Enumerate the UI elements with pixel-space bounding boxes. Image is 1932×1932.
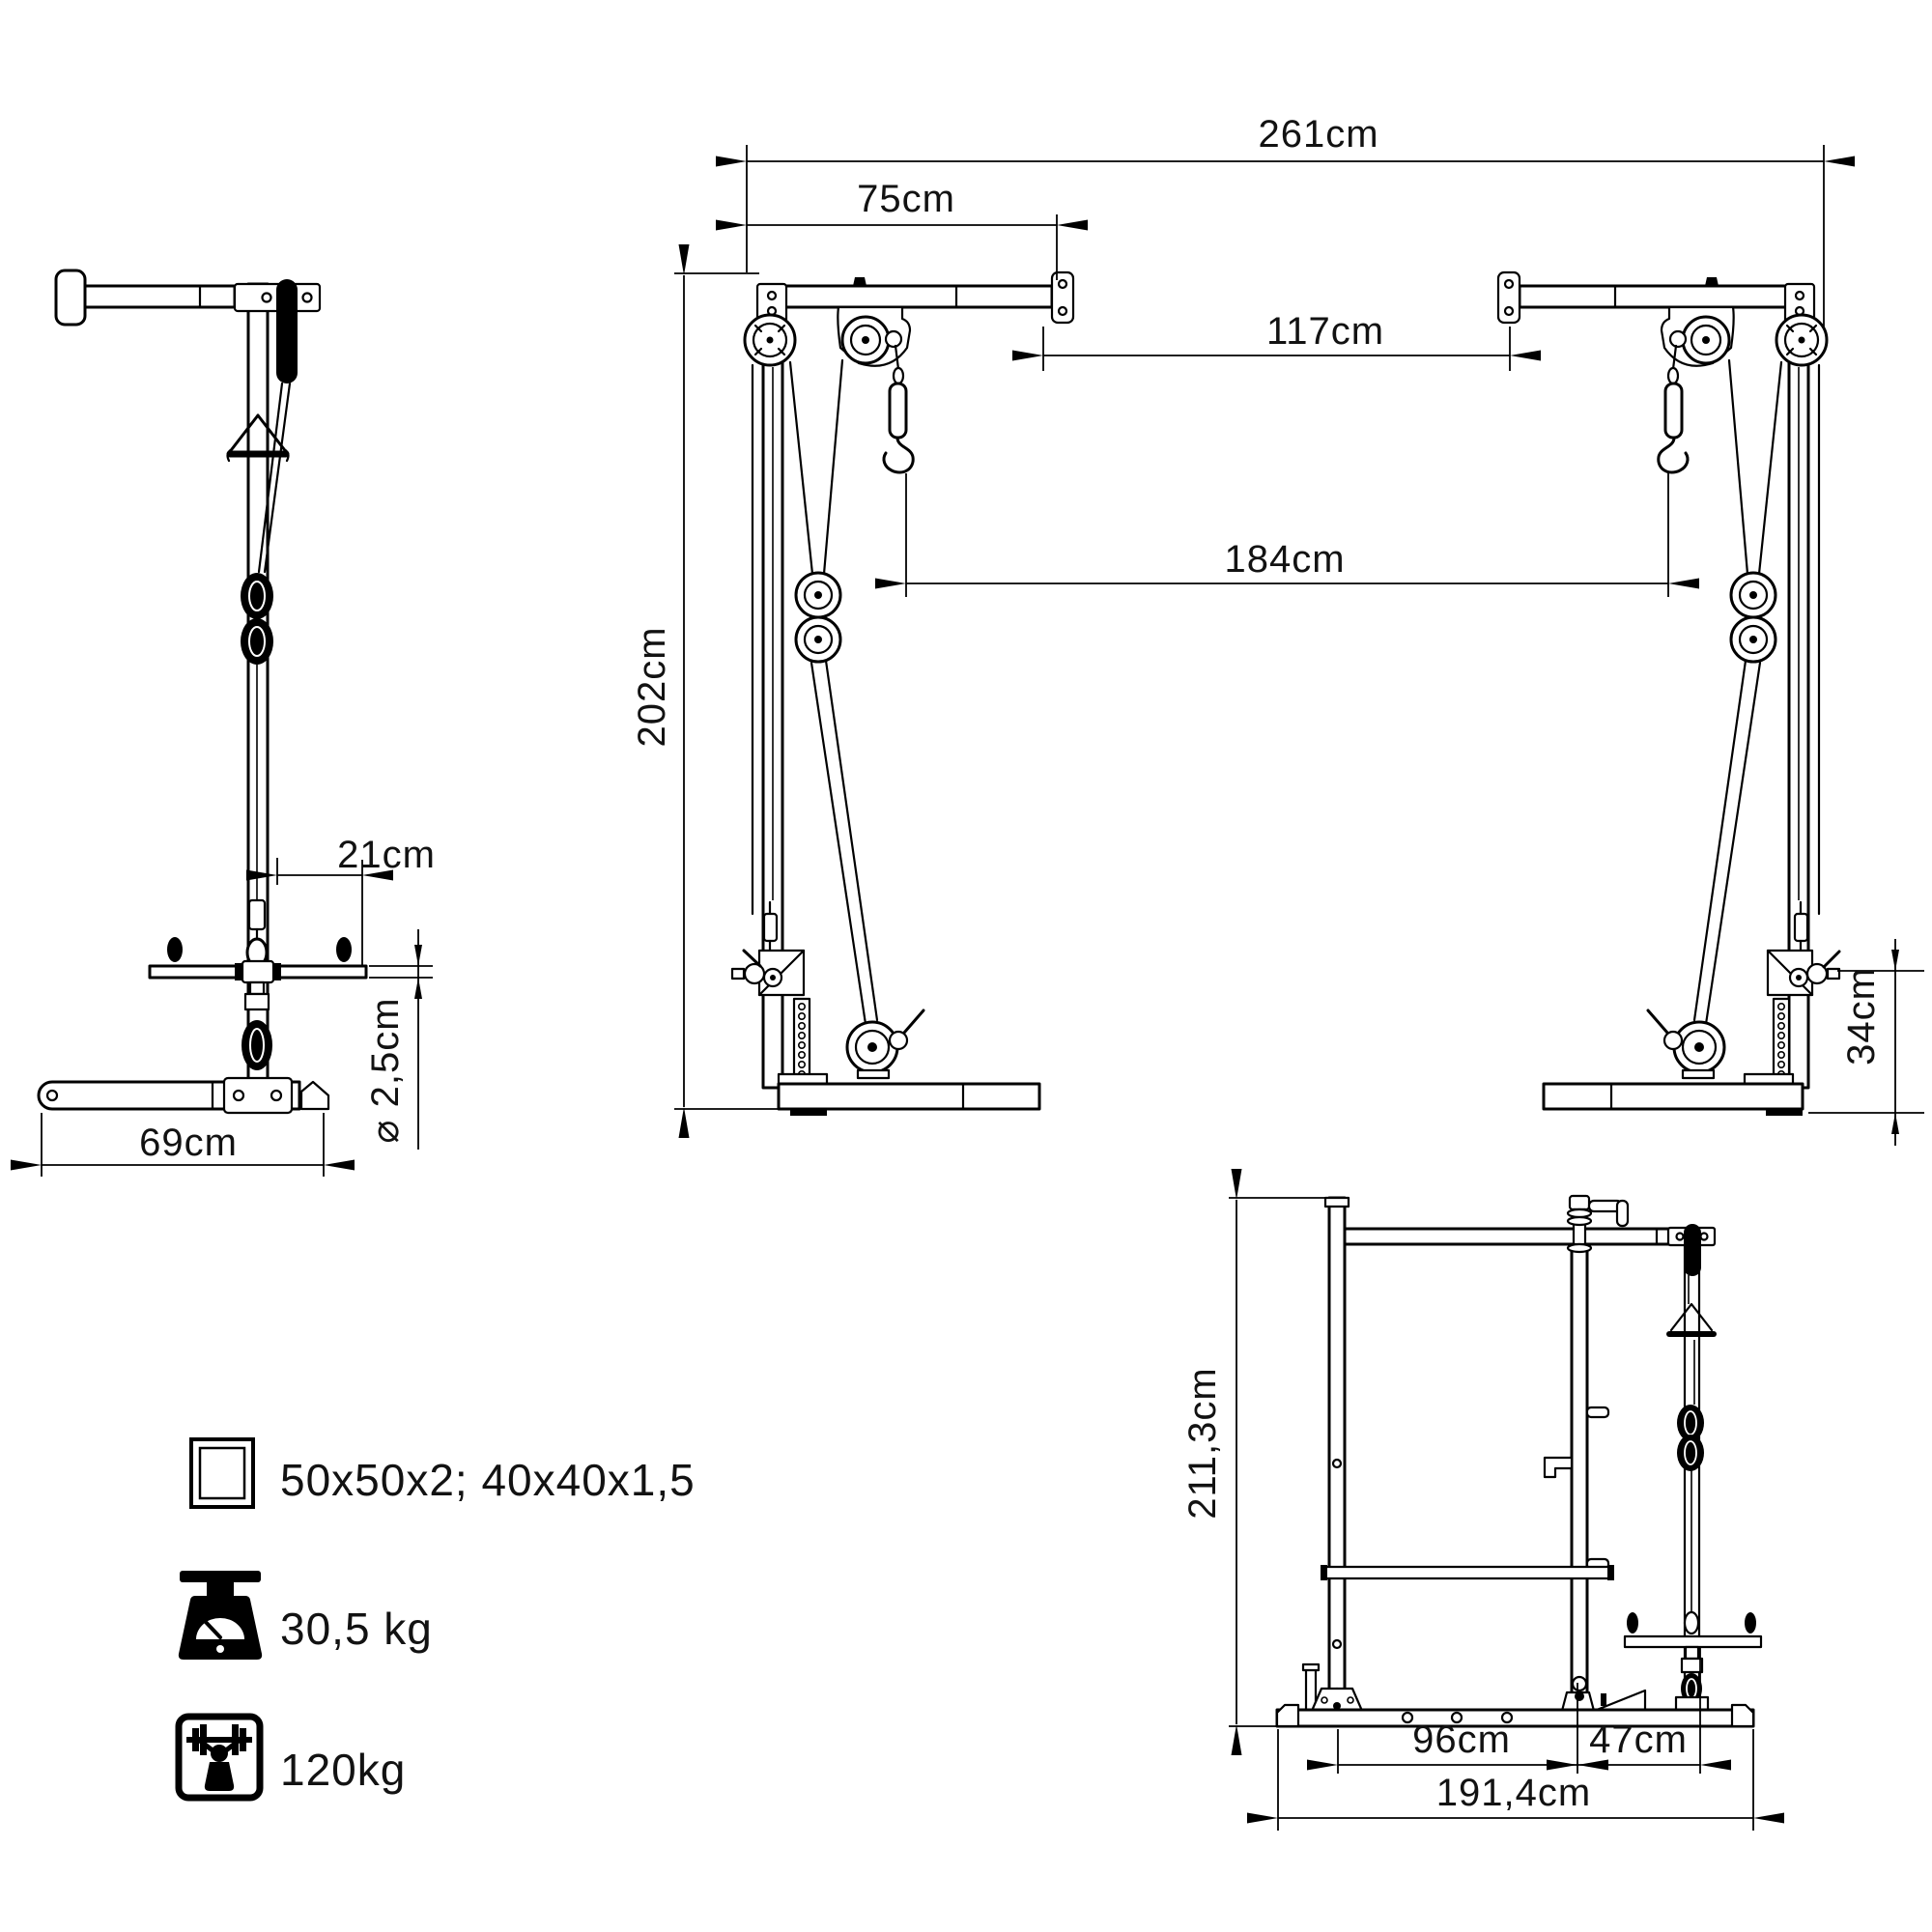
front-left-inner-pulley	[838, 307, 910, 366]
dimension-rack-height-211-3cm: 211,3cm	[1181, 1198, 1333, 1726]
square-tube-icon	[191, 1439, 253, 1507]
tube-profile-label: 50x50x2; 40x40x1,5	[280, 1455, 696, 1505]
side-base	[39, 1078, 328, 1113]
front-right-top-pulley	[1776, 315, 1827, 365]
technical-drawing-page: 21cm ⌀ 2,5cm 69cm	[0, 0, 1932, 1932]
side-turnbuckle	[249, 900, 265, 929]
side-view: 21cm ⌀ 2,5cm 69cm	[39, 270, 436, 1177]
rack-j-hook	[1545, 1458, 1572, 1477]
carabiner-icon	[1627, 1612, 1638, 1634]
front-left-arm	[782, 286, 1052, 307]
dimension-inner-width-117cm: 117cm	[1043, 310, 1510, 371]
rack-middle-post	[1572, 1244, 1587, 1711]
front-right-inner-pulley	[1662, 307, 1734, 366]
tower-top-pulley	[1684, 1224, 1701, 1276]
carabiner-icon	[1745, 1612, 1756, 1634]
side-arm-endcap	[56, 270, 85, 325]
dimension-bar-offset-21cm: 21cm	[277, 834, 436, 966]
dim-label-75cm: 75cm	[857, 178, 955, 220]
dimension-bar-diameter: ⌀ 2,5cm	[364, 929, 433, 1150]
dimension-base-length-69cm: 69cm	[42, 1113, 324, 1177]
side-top-pulley	[276, 279, 298, 384]
dim-label-191-4cm: 191,4cm	[1436, 1772, 1591, 1814]
dimension-drawing: 21cm ⌀ 2,5cm 69cm	[0, 0, 1932, 1932]
weightlifter-icon	[179, 1717, 260, 1798]
side-arm	[84, 286, 235, 307]
front-right-hook	[1659, 346, 1688, 472]
front-left-mid-pulleys	[796, 573, 840, 662]
rack-lat-tower	[1625, 1224, 1761, 1711]
rack-base	[1277, 1664, 1753, 1726]
front-view: 261cm 75cm 117cm 184cm 202cm	[631, 113, 1924, 1146]
dim-label-117cm: 117cm	[1266, 310, 1384, 353]
rack-view: 211,3cm 96cm 47cm 191,4cm	[1181, 1196, 1761, 1831]
dim-label-211-3cm: 211,3cm	[1181, 1367, 1224, 1519]
front-right-base	[1544, 1074, 1803, 1116]
dim-label-96cm: 96cm	[1412, 1719, 1511, 1761]
front-right-bottom-pulley	[1648, 1010, 1724, 1078]
carabiner-icon	[336, 937, 352, 962]
dim-label-184cm: 184cm	[1224, 538, 1345, 581]
specs-panel: 50x50x2; 40x40x1,5 30,5 kg 120kg	[179, 1439, 696, 1798]
front-left-top-pulley	[745, 315, 795, 365]
rack-left-post	[1329, 1198, 1345, 1711]
max-load-label: 120kg	[280, 1745, 406, 1795]
front-left-base	[779, 1074, 1039, 1116]
dim-label-diameter-2-5cm: ⌀ 2,5cm	[364, 997, 407, 1143]
front-right-arm	[1520, 286, 1789, 307]
dim-label-261cm: 261cm	[1258, 113, 1378, 156]
rack-peg	[1587, 1407, 1608, 1417]
rack-top-bar	[1345, 1229, 1673, 1244]
front-left-bottom-pulley	[847, 1010, 923, 1078]
front-left-hook	[884, 346, 913, 472]
carabiner-icon	[167, 937, 183, 962]
dim-label-69cm: 69cm	[139, 1122, 238, 1164]
dim-label-34cm: 34cm	[1840, 967, 1883, 1065]
dim-label-202cm: 202cm	[631, 626, 673, 747]
front-right-mid-pulleys	[1731, 573, 1776, 662]
dim-label-47cm: 47cm	[1589, 1719, 1688, 1761]
dimension-hook-spacing-184cm: 184cm	[906, 473, 1668, 597]
tower-spreader-bar	[1625, 1636, 1761, 1647]
scale-icon	[179, 1571, 262, 1660]
rack-safety-bar	[1321, 1565, 1614, 1580]
dimension-arm-length-75cm: 75cm	[747, 178, 1057, 280]
dimension-rack-depth-96cm: 96cm	[1338, 1683, 1577, 1774]
weight-label: 30,5 kg	[280, 1604, 433, 1654]
dim-label-21cm: 21cm	[337, 834, 436, 876]
